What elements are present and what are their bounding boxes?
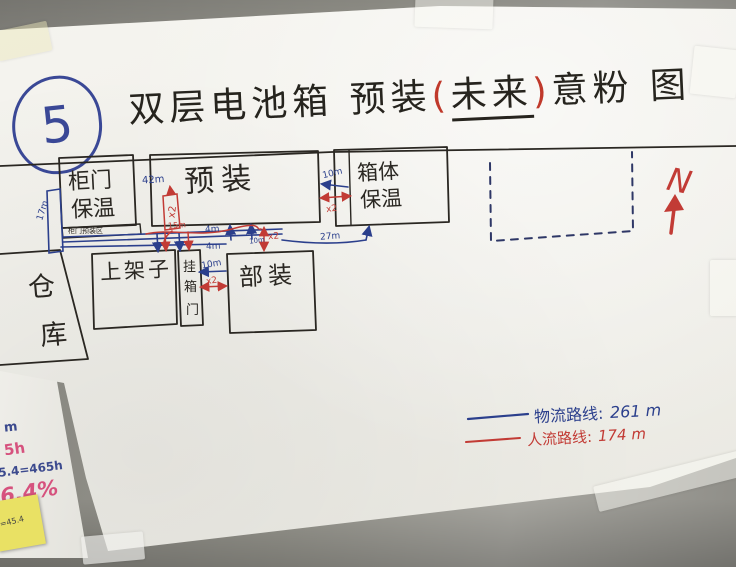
measure-10m-gap: 10m <box>322 167 344 182</box>
people-double-arrow-boxinsulation <box>321 196 350 198</box>
measure-17m: 17m <box>35 200 51 222</box>
label-sub-assembly: 部装 <box>238 261 297 292</box>
label-hang-door-char2: 箱 <box>184 279 197 295</box>
x2-vertical: x2 <box>268 231 280 242</box>
label-shelving: 上架子 <box>99 257 172 285</box>
measure-10m-lower: 10m <box>201 258 223 271</box>
legend-logistics-value: 261 m <box>610 400 662 422</box>
label-box-insulation-line2: 保温 <box>359 186 402 212</box>
logistics-arrow-down-shelving <box>157 234 158 251</box>
label-warehouse-char2: 库 <box>39 319 69 352</box>
future-area-dashed-box <box>490 152 633 241</box>
legend-logistics-label: 物流路线: <box>534 404 604 427</box>
logistics-arrow-up-preassembly-1 <box>230 226 231 240</box>
people-arrow-down-hangdoor <box>188 232 189 249</box>
legend-people-line <box>466 438 520 442</box>
tape-top-right <box>690 46 736 99</box>
label-door-preassembly-strip: 柜门预装区 <box>68 226 103 235</box>
compass-north-arrow-shaft <box>671 209 674 233</box>
measure-4m-lower: 4m <box>206 242 221 253</box>
logistics-route-line-3 <box>61 244 226 247</box>
measure-10m-mid: 10m <box>249 236 266 246</box>
label-hang-door-char1: 挂 <box>183 260 196 275</box>
tape-bottom-left <box>81 531 145 564</box>
legend-people-label: 人流路线: <box>527 428 593 449</box>
label-hang-door-char3: 门 <box>186 303 199 318</box>
label-warehouse-char1: 仓 <box>27 271 57 304</box>
label-box-insulation-line1: 箱体 <box>357 159 400 185</box>
people-double-arrow-lower <box>201 286 226 287</box>
compass-north-label: N <box>664 160 695 202</box>
measure-27m: 27m <box>320 231 341 242</box>
label-preassembly: 预装 <box>183 161 259 200</box>
x2-boxinsulation: x2 <box>326 204 338 215</box>
measure-4m-upper: 4m <box>205 225 220 236</box>
measure-15m: 15m <box>168 220 187 230</box>
door-buffer-rect <box>47 189 63 253</box>
legend-logistics-line <box>468 414 528 419</box>
label-door-insulation-line2: 保温 <box>70 196 115 223</box>
tape-top-center <box>414 0 493 29</box>
people-arrow-up-rect <box>170 187 171 194</box>
people-arrow-down-shelving <box>165 233 166 250</box>
x2-lower: x2 <box>206 276 218 287</box>
legend-people-value: 174 m <box>598 425 647 445</box>
x2-door-rect: x2 <box>167 205 179 219</box>
label-door-insulation-line1: 柜门 <box>67 168 112 195</box>
tape-right-middle <box>710 260 736 316</box>
room-box-insulation-inner-wall <box>349 150 351 225</box>
logistics-arrow-up-boxinsulation <box>366 227 369 240</box>
measure-42m: 42m <box>142 174 165 187</box>
logistics-arrow-down-hangdoor <box>179 233 180 250</box>
